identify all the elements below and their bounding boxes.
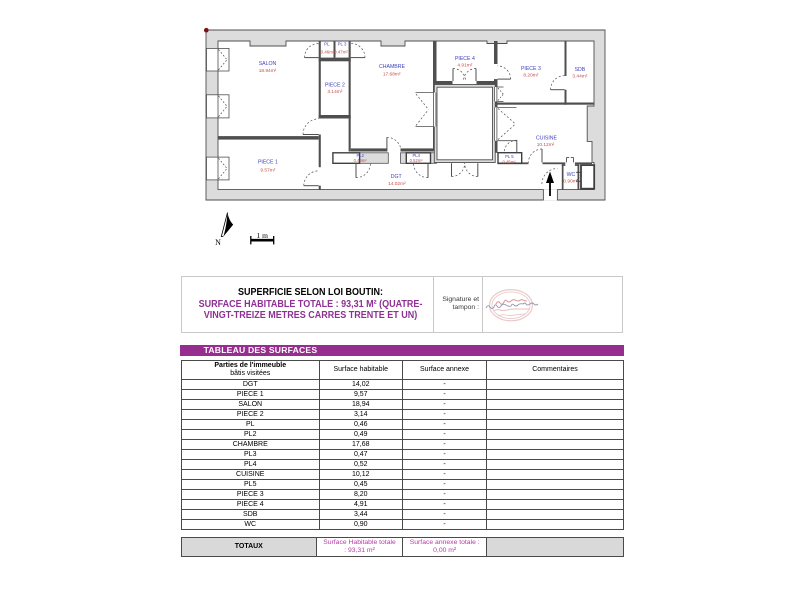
svg-text:PIECE 4: PIECE 4	[455, 56, 475, 62]
svg-text:SALON: SALON	[259, 61, 277, 67]
svg-text:0.49m²: 0.49m²	[354, 158, 368, 163]
svg-text:18.94m²: 18.94m²	[259, 68, 277, 74]
svg-text:WC: WC	[567, 172, 576, 178]
svg-text:DGT: DGT	[391, 174, 403, 180]
svg-text:0.46m²: 0.46m²	[321, 49, 335, 54]
svg-text:3.14m²: 3.14m²	[327, 89, 342, 95]
svg-text:N: N	[215, 238, 221, 247]
svg-text:14.02m²: 14.02m²	[388, 181, 406, 187]
svg-text:1 m: 1 m	[256, 231, 268, 240]
svg-text:17.68m²: 17.68m²	[383, 72, 401, 78]
svg-text:4.91m²: 4.91m²	[457, 63, 472, 69]
svg-text:8.20m²: 8.20m²	[523, 73, 538, 79]
svg-text:PIECE 1: PIECE 1	[258, 160, 278, 166]
svg-text:9.57m²: 9.57m²	[260, 167, 275, 173]
svg-text:PIECE 2: PIECE 2	[325, 83, 345, 89]
svg-text:0.52m²: 0.52m²	[410, 158, 424, 163]
svg-text:PIECE 3: PIECE 3	[521, 66, 541, 72]
svg-text:CUISINE: CUISINE	[536, 136, 558, 142]
svg-text:0.90m²: 0.90m²	[563, 179, 578, 185]
svg-text:10.12m²: 10.12m²	[537, 142, 555, 148]
svg-text:CHAMBRE: CHAMBRE	[379, 64, 405, 70]
svg-text:0.47m²: 0.47m²	[334, 49, 348, 54]
svg-text:3.44m²: 3.44m²	[572, 74, 587, 80]
svg-text:PL: PL	[324, 42, 330, 47]
svg-text:SDB: SDB	[575, 67, 586, 73]
svg-text:0.45m²: 0.45m²	[502, 159, 516, 164]
svg-text:PL 3: PL 3	[338, 42, 347, 47]
